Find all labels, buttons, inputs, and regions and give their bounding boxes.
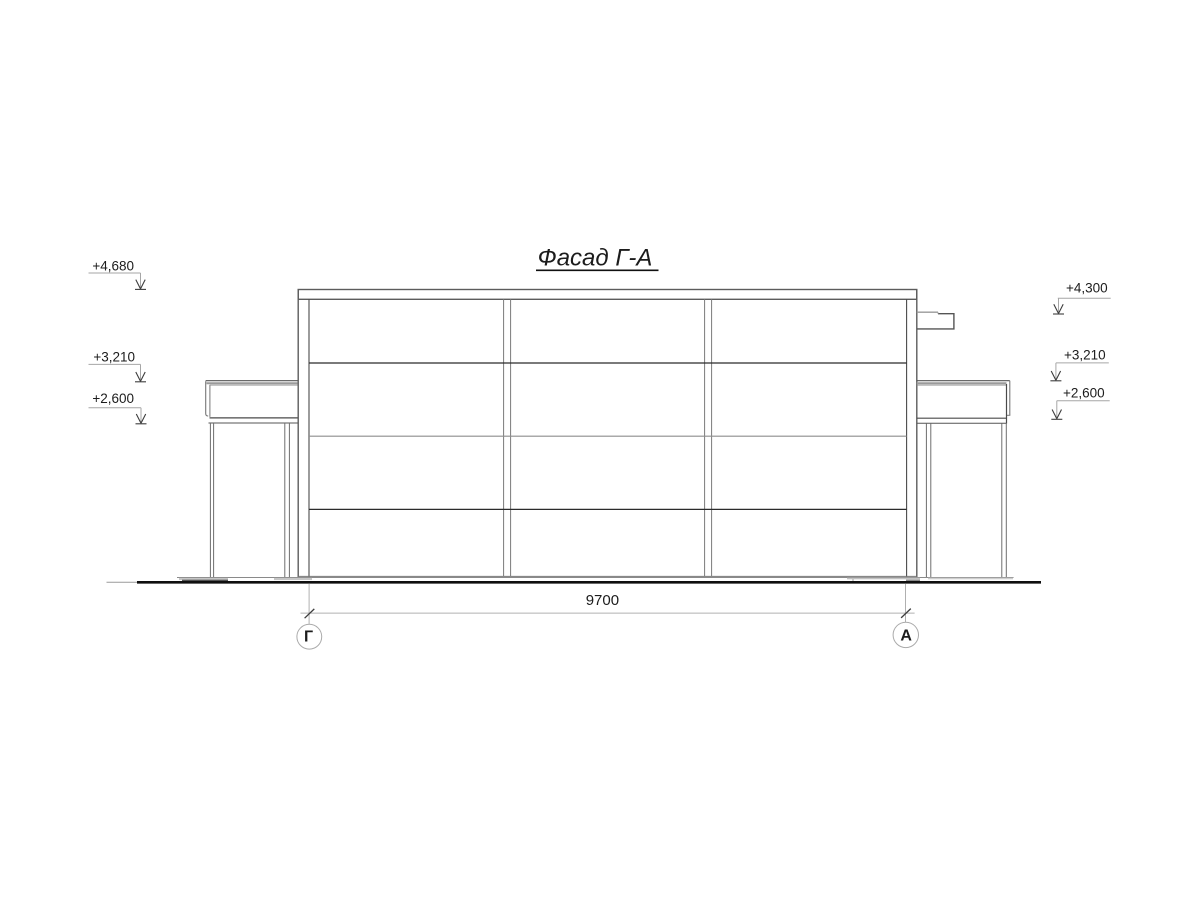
svg-text:+4,300: +4,300 bbox=[1066, 281, 1108, 296]
svg-text:+4,680: +4,680 bbox=[92, 258, 134, 273]
svg-text:+3,210: +3,210 bbox=[93, 350, 135, 365]
svg-text:А: А bbox=[900, 628, 912, 645]
svg-text:+3,210: +3,210 bbox=[1064, 348, 1106, 363]
svg-text:+2,600: +2,600 bbox=[1063, 385, 1105, 400]
svg-text:+2,600: +2,600 bbox=[92, 391, 134, 406]
svg-text:9700: 9700 bbox=[586, 592, 619, 609]
svg-text:Фасад Г-А: Фасад Г-А bbox=[538, 245, 653, 272]
svg-text:Г: Г bbox=[304, 628, 313, 645]
